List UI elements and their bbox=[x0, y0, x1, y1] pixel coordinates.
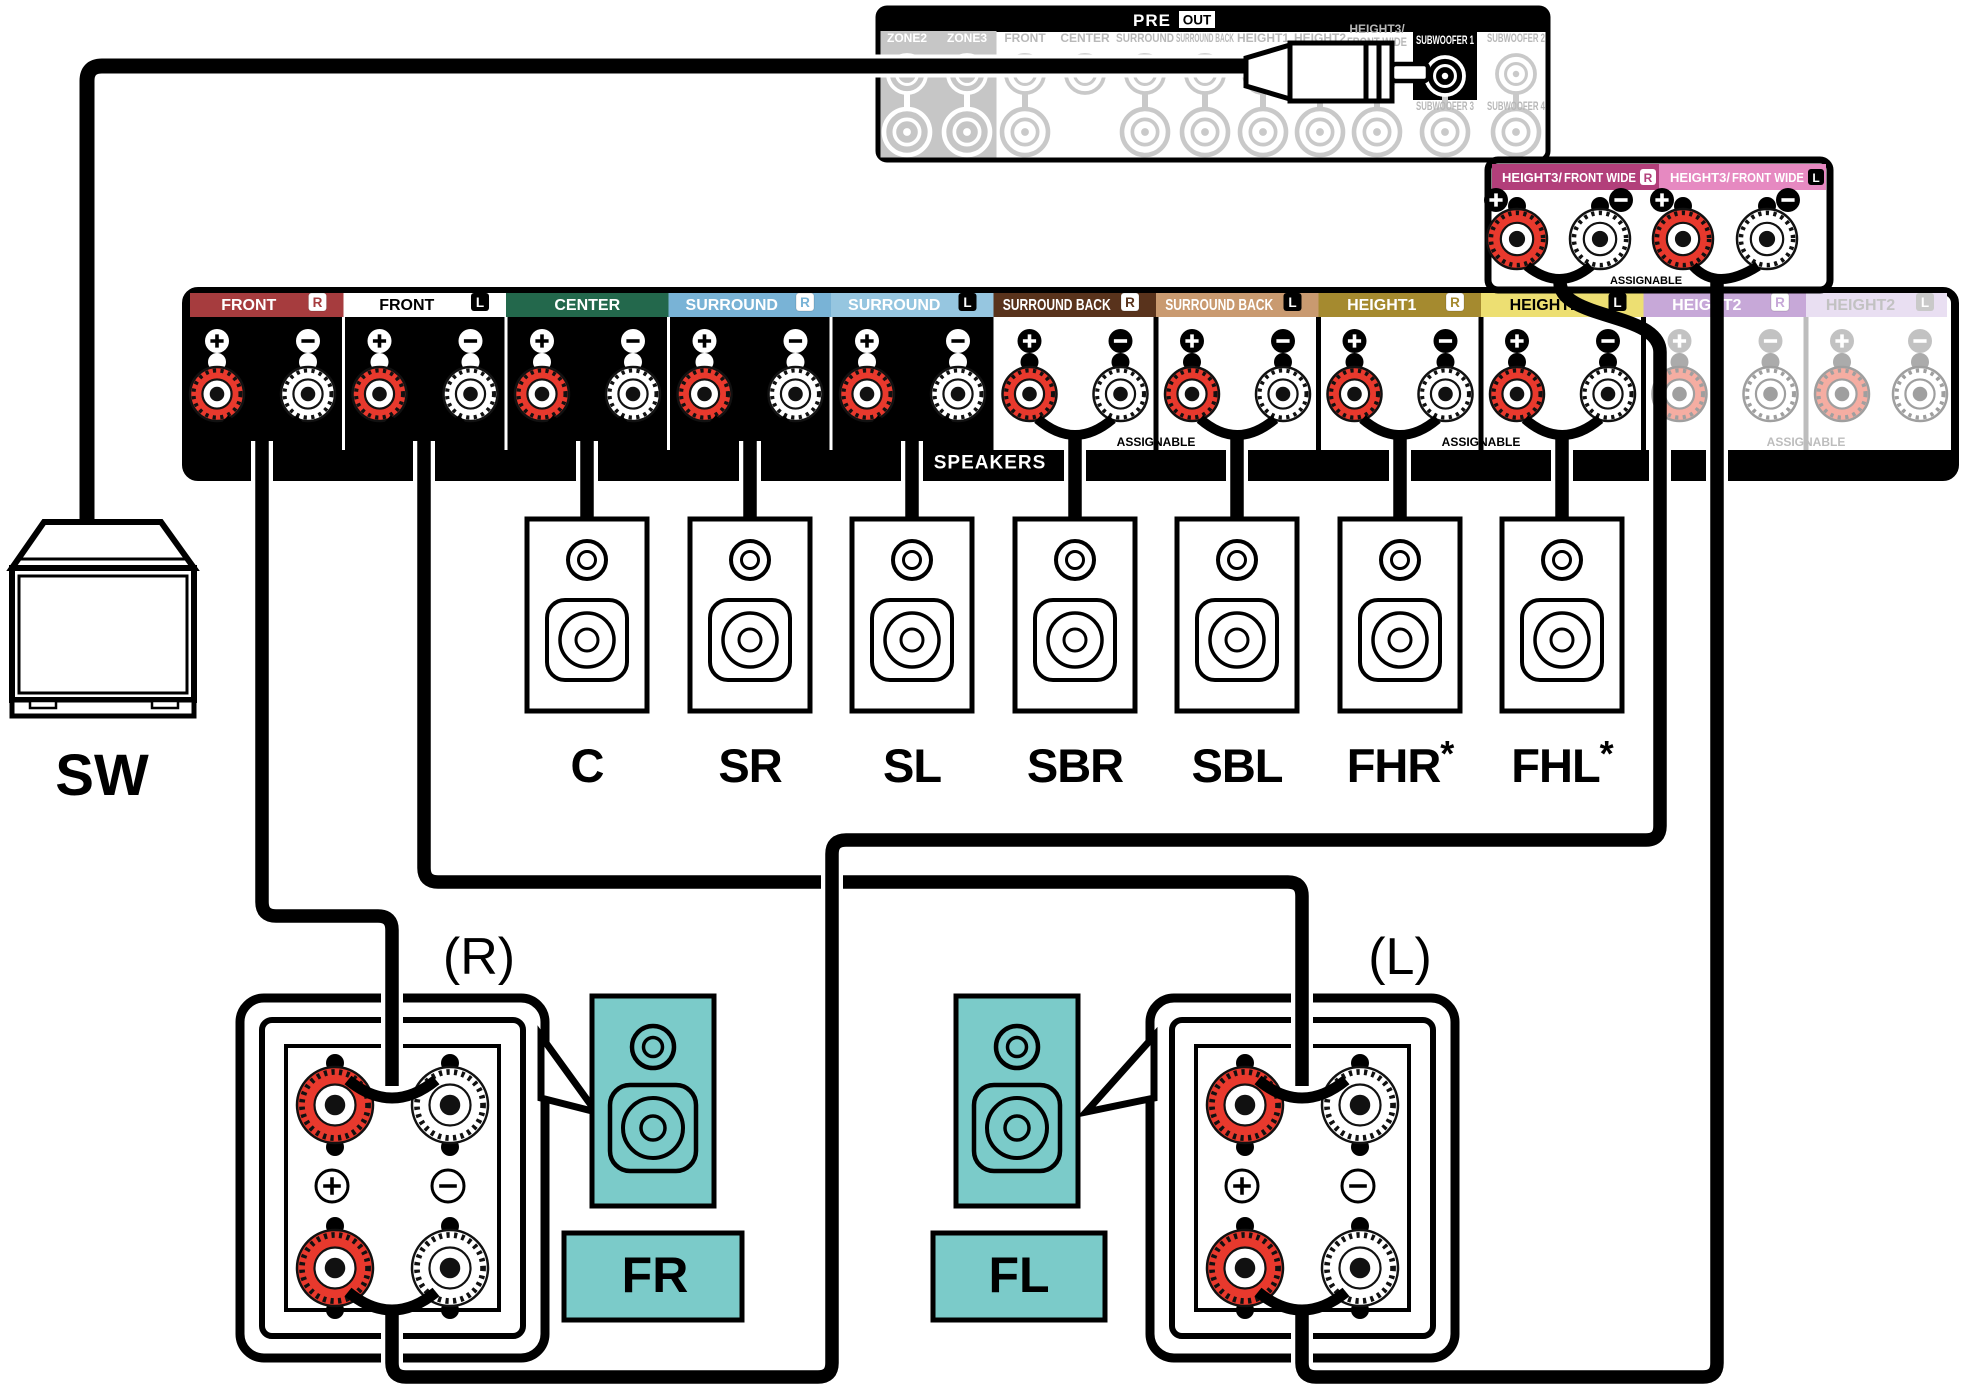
post-hole bbox=[372, 387, 387, 402]
pre-out-jack-bottom bbox=[1422, 109, 1468, 155]
out-box-label: OUT bbox=[1183, 13, 1212, 28]
section-badge: R bbox=[1771, 293, 1789, 311]
pre-out-jack-bottom bbox=[1297, 109, 1343, 155]
speaker-label: SBL bbox=[1192, 739, 1283, 792]
post-hole bbox=[1438, 387, 1453, 402]
post-hole bbox=[626, 387, 641, 402]
post-hole bbox=[210, 387, 225, 402]
fl-label: FL bbox=[988, 1247, 1049, 1303]
binding-post-minus bbox=[1094, 367, 1148, 421]
wire-front-r bbox=[262, 434, 392, 1086]
pre-out-col-label: SUBWOOFER 1 bbox=[1416, 33, 1474, 47]
height3-subtitle-l: FRONT WIDE bbox=[1732, 170, 1804, 185]
binding-post-minus bbox=[1322, 1067, 1398, 1143]
sw-front-face bbox=[12, 568, 194, 700]
post-hole bbox=[325, 1258, 346, 1279]
post-hole bbox=[1022, 387, 1037, 402]
binding-post-minus bbox=[1570, 209, 1630, 269]
binding-post-minus bbox=[1737, 209, 1797, 269]
post-hole bbox=[951, 387, 966, 402]
pre-out-jack-bottom bbox=[1493, 109, 1539, 155]
post-hole bbox=[1347, 387, 1362, 402]
fr-label: FR bbox=[622, 1247, 689, 1303]
binding-post-plus bbox=[840, 367, 894, 421]
speaker-fhl: FHL* bbox=[1502, 519, 1622, 792]
pre-out-col-label: HEIGHT1 bbox=[1237, 31, 1289, 45]
badge-letter: L bbox=[1288, 295, 1296, 310]
binding-post-plus bbox=[678, 367, 732, 421]
post-hole bbox=[1185, 387, 1200, 402]
pre-out-title: PRE bbox=[1133, 11, 1171, 30]
section-header-label: SURROUND BACK bbox=[1003, 297, 1111, 314]
pre-out-col-label: FRONT bbox=[1004, 31, 1046, 45]
badge-letter: R bbox=[1644, 171, 1653, 185]
post-hole bbox=[1350, 1095, 1371, 1116]
binding-post-plus bbox=[515, 367, 569, 421]
section-header-label: FRONT bbox=[221, 297, 276, 314]
section-header-label: HEIGHT2 bbox=[1672, 297, 1741, 314]
pre-out-jack-bottom bbox=[884, 109, 930, 155]
badge-letter: L bbox=[1812, 171, 1819, 185]
jack-pin bbox=[1316, 128, 1324, 136]
pre-out-jack-bottom bbox=[1182, 109, 1228, 155]
pre-out-jack-bottom bbox=[944, 109, 990, 155]
front-left-group: (L)FL bbox=[933, 928, 1455, 1358]
section-header-label: CENTER bbox=[554, 297, 620, 314]
pre-out-col-label: ZONE3 bbox=[947, 31, 987, 45]
binding-post-minus bbox=[444, 367, 498, 421]
pre-out-jack-top bbox=[1497, 55, 1535, 93]
speaker-sl: SL bbox=[852, 519, 972, 792]
binding-post-plus bbox=[190, 367, 244, 421]
right-channel-tag: (R) bbox=[443, 928, 515, 986]
binding-post-minus bbox=[769, 367, 823, 421]
jack-pin bbox=[903, 128, 911, 136]
section-badge: L bbox=[1609, 293, 1627, 311]
callout-pointer bbox=[541, 1036, 596, 1112]
jack-pin bbox=[1442, 73, 1448, 79]
speaker-box bbox=[1015, 519, 1135, 711]
jack-pin bbox=[963, 128, 971, 136]
post-hole bbox=[1276, 387, 1291, 402]
speaker-sr: SR bbox=[690, 519, 810, 792]
pre-out-sub-label: SUBWOOFER 4 bbox=[1487, 101, 1545, 113]
assignable-label-grayed: ASSIGNABLE bbox=[1767, 435, 1846, 449]
post-hole bbox=[1510, 387, 1525, 402]
height3-subtitle-r: FRONT WIDE bbox=[1564, 170, 1636, 185]
speaker-box bbox=[1502, 519, 1622, 711]
post-hole bbox=[1509, 231, 1525, 247]
speaker-sbr: SBR bbox=[1015, 519, 1135, 792]
av-receiver-speaker-wiring-diagram: PREOUTZONE2ZONE3FRONTCENTERSURROUNDSURRO… bbox=[0, 0, 1975, 1391]
pre-out-col-label: ZONE2 bbox=[887, 31, 927, 45]
jack-pin bbox=[1441, 128, 1449, 136]
binding-post-minus bbox=[1581, 367, 1635, 421]
speaker-label: FHR* bbox=[1347, 733, 1455, 792]
post-hole bbox=[1235, 1095, 1256, 1116]
pre-out-col-label: CENTER bbox=[1060, 31, 1110, 45]
sw-foot bbox=[30, 701, 56, 708]
post-hole bbox=[1672, 387, 1687, 402]
speaker-box bbox=[1340, 519, 1460, 711]
binding-post-plus bbox=[297, 1230, 373, 1306]
pre-out-col-label: SURROUND BACK bbox=[1176, 31, 1234, 45]
speaker-sbl: SBL bbox=[1177, 519, 1297, 792]
speaker-fhr: FHR* bbox=[1340, 519, 1460, 792]
badge-letter: R bbox=[1775, 295, 1785, 310]
binding-post-plus bbox=[1207, 1230, 1283, 1306]
pre-out-col-label: SURROUND bbox=[1116, 31, 1174, 45]
assignable-label: ASSIGNABLE bbox=[1442, 435, 1521, 449]
badge-letter: L bbox=[1921, 295, 1929, 310]
speaker-row: CSRSLSBRSBLFHR*FHL* bbox=[527, 519, 1622, 792]
badge-letter: R bbox=[1450, 295, 1460, 310]
jack-pin bbox=[1373, 128, 1381, 136]
callout-pointer bbox=[1086, 1036, 1154, 1112]
section-badge: R bbox=[309, 293, 327, 311]
post-hole bbox=[1601, 387, 1616, 402]
jack-pin bbox=[1021, 128, 1029, 136]
jack-pin bbox=[1259, 128, 1267, 136]
post-hole bbox=[1350, 1258, 1371, 1279]
section-badge: R bbox=[1446, 293, 1464, 311]
badge-letter: R bbox=[800, 295, 810, 310]
post-hole bbox=[1835, 387, 1850, 402]
post-hole bbox=[1913, 387, 1928, 402]
post-hole bbox=[301, 387, 316, 402]
binding-post-plus bbox=[1328, 367, 1382, 421]
post-hole bbox=[440, 1258, 461, 1279]
pre-out-jack-top bbox=[1426, 57, 1464, 95]
section-badge: L bbox=[471, 293, 489, 311]
wiring-diagram-canvas: PREOUTZONE2ZONE3FRONTCENTERSURROUNDSURRO… bbox=[0, 0, 1975, 1391]
binding-post-plus bbox=[1487, 209, 1547, 269]
badge-letter: L bbox=[963, 295, 971, 310]
jack-pin bbox=[1201, 128, 1209, 136]
height3-front-wide-panel: HEIGHT3/FRONT WIDERHEIGHT3/FRONT WIDELAS… bbox=[1484, 160, 1830, 290]
sw-label: SW bbox=[55, 743, 149, 808]
post-hole bbox=[1235, 1258, 1256, 1279]
section-badge: L bbox=[959, 293, 977, 311]
sw-top-face bbox=[12, 522, 194, 568]
post-hole bbox=[535, 387, 550, 402]
post-hole bbox=[788, 387, 803, 402]
assignable-label: ASSIGNABLE bbox=[1117, 435, 1196, 449]
binding-post-minus bbox=[931, 367, 985, 421]
post-hole bbox=[1113, 387, 1128, 402]
assignable-label: ASSIGNABLE bbox=[1610, 275, 1682, 287]
binding-post-minus bbox=[1744, 367, 1798, 421]
rca-plug-tip bbox=[1392, 64, 1428, 81]
left-channel-tag: (L) bbox=[1368, 928, 1432, 986]
badge-letter: L bbox=[1613, 295, 1621, 310]
height3-title-l: HEIGHT3/ bbox=[1670, 170, 1730, 185]
pre-out-col-label: SUBWOOFER 2 bbox=[1487, 31, 1545, 45]
speaker-c: C bbox=[527, 519, 647, 792]
pre-out-sub-label: SUBWOOFER 3 bbox=[1416, 101, 1474, 113]
pre-out-panel: PREOUTZONE2ZONE3FRONTCENTERSURROUNDSURRO… bbox=[878, 8, 1548, 160]
section-header-label: FRONT bbox=[379, 297, 434, 314]
binding-post-plus bbox=[1490, 367, 1544, 421]
section-header-label: HEIGHT1 bbox=[1347, 297, 1416, 314]
pre-out-jack-bottom bbox=[1354, 109, 1400, 155]
speaker-box bbox=[852, 519, 972, 711]
pre-out-jack-bottom bbox=[1240, 109, 1286, 155]
speaker-box bbox=[527, 519, 647, 711]
post-hole bbox=[1759, 231, 1775, 247]
binding-post-minus bbox=[412, 1067, 488, 1143]
section-badge: R bbox=[1121, 293, 1139, 311]
binding-post-minus bbox=[1256, 367, 1310, 421]
section-badge: L bbox=[1916, 293, 1934, 311]
jack-pin bbox=[1513, 71, 1519, 77]
speaker-box bbox=[1177, 519, 1297, 711]
jack-pin bbox=[1512, 128, 1520, 136]
pre-out-jack-bottom bbox=[1002, 109, 1048, 155]
section-badge: R bbox=[796, 293, 814, 311]
badge-letter: L bbox=[476, 295, 484, 310]
binding-post-plus bbox=[353, 367, 407, 421]
height3-title-r: HEIGHT3/ bbox=[1502, 170, 1562, 185]
binding-post-plus bbox=[297, 1067, 373, 1143]
sw-foot bbox=[152, 701, 178, 708]
speaker-box bbox=[690, 519, 810, 711]
subwoofer: SW bbox=[12, 522, 194, 808]
badge-letter: R bbox=[1125, 295, 1135, 310]
post-hole bbox=[325, 1095, 346, 1116]
binding-post-plus bbox=[1165, 367, 1219, 421]
section-badge: L bbox=[1284, 293, 1302, 311]
speaker-label: C bbox=[571, 739, 604, 792]
post-hole bbox=[440, 1095, 461, 1116]
badge-letter: R bbox=[313, 295, 323, 310]
binding-post-plus bbox=[1653, 209, 1713, 269]
post-hole bbox=[1763, 387, 1778, 402]
post-hole bbox=[697, 387, 712, 402]
binding-post-plus bbox=[1815, 367, 1869, 421]
section-header-label: SURROUND bbox=[686, 297, 778, 314]
post-hole bbox=[860, 387, 875, 402]
post-hole bbox=[463, 387, 478, 402]
pre-out-jack-bottom bbox=[1122, 109, 1168, 155]
binding-post-plus bbox=[1003, 367, 1057, 421]
jack-pin bbox=[1141, 128, 1149, 136]
front-right-group: (R)FR bbox=[240, 928, 742, 1358]
section-header-label: HEIGHT2 bbox=[1826, 297, 1895, 314]
binding-post-plus bbox=[1207, 1067, 1283, 1143]
binding-post-minus bbox=[1419, 367, 1473, 421]
speaker-label: SR bbox=[718, 739, 781, 792]
speaker-label: SL bbox=[883, 739, 941, 792]
section-header-label: SURROUND bbox=[848, 297, 940, 314]
speaker-label: SBR bbox=[1027, 739, 1123, 792]
speaker-label: FHL* bbox=[1511, 733, 1613, 792]
speakers-bar-label: SPEAKERS bbox=[934, 453, 1047, 474]
section-header-label: SURROUND BACK bbox=[1165, 297, 1273, 314]
binding-post-minus bbox=[1893, 367, 1947, 421]
binding-post-minus bbox=[281, 367, 335, 421]
post-hole bbox=[1592, 231, 1608, 247]
binding-post-minus bbox=[606, 367, 660, 421]
post-hole bbox=[1675, 231, 1691, 247]
